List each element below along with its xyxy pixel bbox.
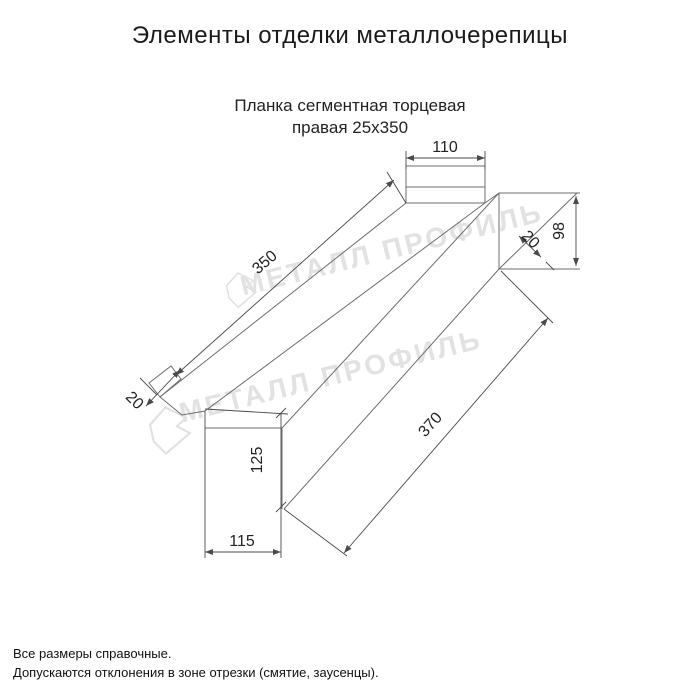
dim-label-370: 370 [415, 409, 446, 440]
dim-label-115: 115 [229, 533, 255, 550]
drawing-page: Элементы отделки металлочерепицы Планка … [0, 0, 700, 700]
dimension-115: 115 [205, 411, 281, 558]
footer-note-line1: Все размеры справочные. [13, 645, 379, 664]
watermark-text: МЕТАЛЛ ПРОФИЛЬ [237, 196, 546, 301]
dim-label-125: 125 [249, 447, 266, 474]
dimension-20-right: 20 [518, 228, 554, 270]
dimension-370: 370 [284, 271, 553, 556]
dim-label-20-left: 20 [122, 389, 147, 414]
dim-label-110: 110 [432, 139, 458, 156]
footer-note-line2: Допускаются отклонения в зоне отрезки (с… [13, 664, 379, 683]
technical-drawing: МЕТАЛЛ ПРОФИЛЬ МЕТАЛЛ ПРОФИЛЬ [0, 0, 700, 700]
dimension-110: 110 [406, 139, 485, 169]
watermark-lower: МЕТАЛЛ ПРОФИЛЬ [147, 323, 485, 456]
dim-label-98: 98 [551, 222, 568, 240]
footer-notes: Все размеры справочные. Допускаются откл… [13, 645, 379, 683]
